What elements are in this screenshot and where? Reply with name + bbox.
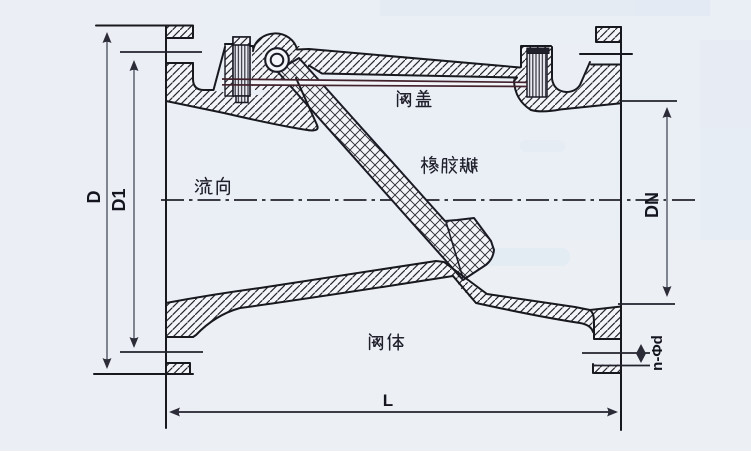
svg-text:n-Φd: n-Φd <box>649 335 666 371</box>
svg-text:L: L <box>383 391 393 410</box>
svg-text:D: D <box>84 191 104 204</box>
svg-text:DN: DN <box>642 192 662 218</box>
svg-text:D1: D1 <box>109 188 129 211</box>
